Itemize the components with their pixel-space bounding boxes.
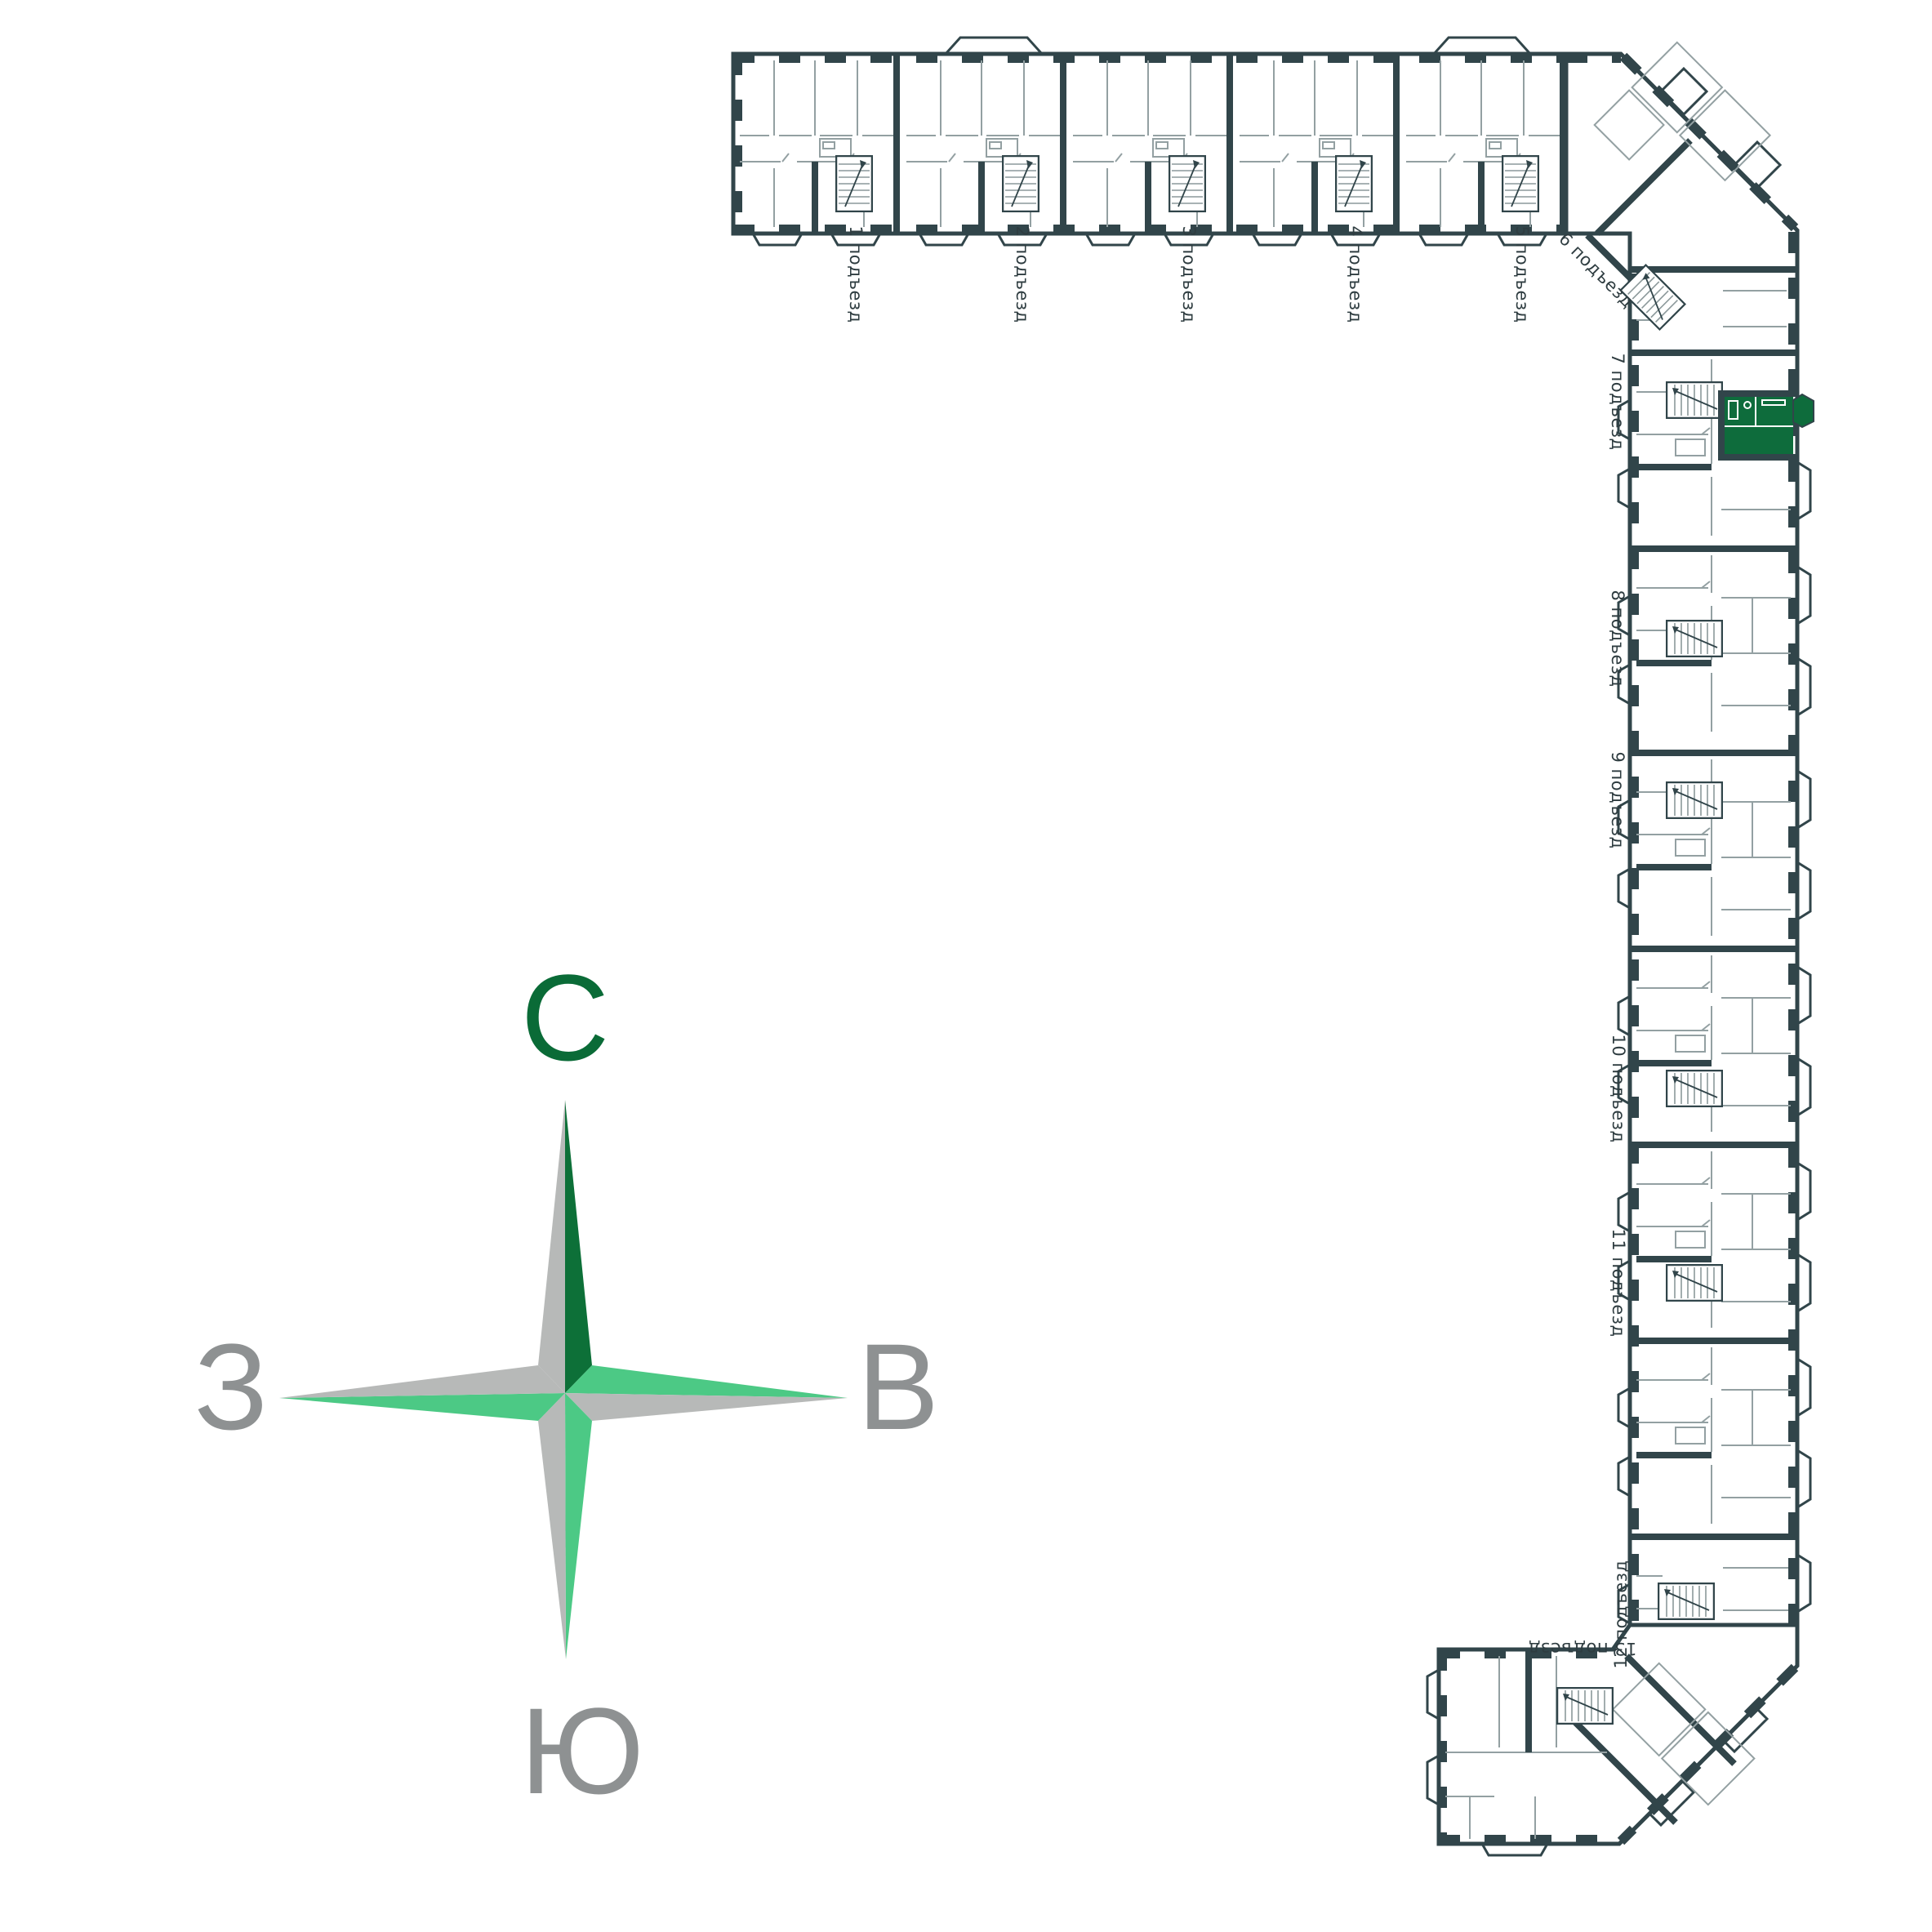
stairwell-icon-10 xyxy=(1667,1071,1722,1106)
compass-arm-south-left xyxy=(538,1393,566,1659)
entrance-label-2: 2 подъезд xyxy=(1013,225,1032,323)
stairwell-icon-3 xyxy=(1169,156,1205,211)
compass-arm-west-top xyxy=(279,1365,565,1398)
highlighted-apartment-area xyxy=(1725,397,1793,459)
entrance-label-13: 13 подъезд xyxy=(1529,1639,1637,1658)
compass-arm-north-right xyxy=(565,1100,592,1393)
stairwell-icon-8 xyxy=(1667,621,1722,657)
entrance-label-8: 8 подъезд xyxy=(1608,590,1627,687)
building-floor-plan-page: 1 подъезд 2 подъезд 3 подъезд 4 подъезд … xyxy=(0,0,1932,1932)
stairwell-icon-5 xyxy=(1502,156,1538,211)
stairwell-icon-13 xyxy=(1557,1688,1613,1724)
stairwell-icon-11 xyxy=(1667,1265,1722,1301)
stairwell-icon-9 xyxy=(1667,782,1722,818)
entrance-label-11: 11 подъезд xyxy=(1609,1229,1628,1338)
compass-arm-north-left xyxy=(538,1100,565,1393)
entrance-label-9: 9 подъезд xyxy=(1608,751,1627,848)
entrance-label-4: 4 подъезд xyxy=(1346,225,1365,323)
stairwell-icon-7 xyxy=(1667,382,1722,418)
entrance-label-3: 3 подъезд xyxy=(1179,225,1199,323)
compass-west-label: З xyxy=(194,1318,269,1455)
entrance-label-1: 1 подъезд xyxy=(846,225,866,323)
stairwell-icon-12 xyxy=(1658,1583,1714,1619)
highlighted-apartment-bay xyxy=(1793,394,1814,427)
compass-east-label: В xyxy=(857,1318,939,1455)
compass-arm-south-right xyxy=(565,1393,592,1659)
entrance-label-7: 7 подъезд xyxy=(1608,353,1627,450)
site-plan: 1 подъезд 2 подъезд 3 подъезд 4 подъезд … xyxy=(0,0,1932,1932)
compass-north-label: С xyxy=(521,949,609,1086)
entrance-label-10: 10 подъезд xyxy=(1609,1035,1628,1143)
stairwell-icon-2 xyxy=(1003,156,1039,211)
compass-arm-east-top xyxy=(565,1365,848,1398)
stairwell-icon-4 xyxy=(1336,156,1372,211)
compass-south-label: Ю xyxy=(520,1682,644,1819)
entrance-labels: 1 подъезд 2 подъезд 3 подъезд 4 подъезд … xyxy=(846,225,1638,1668)
entrance-label-5: 5 подъезд xyxy=(1512,225,1532,323)
stairwell-icon-1 xyxy=(836,156,872,211)
compass-rose: С З В Ю xyxy=(194,949,939,1819)
